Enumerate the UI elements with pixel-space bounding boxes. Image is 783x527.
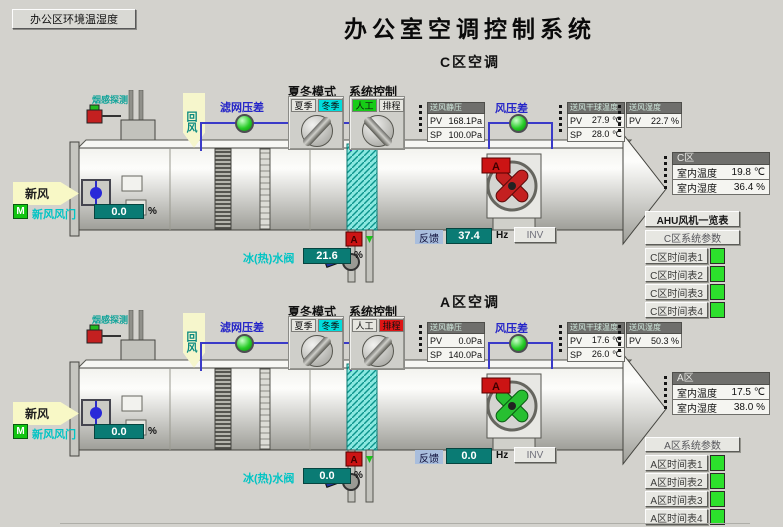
water-valve-value: 21.6 bbox=[303, 248, 351, 264]
supply-humidity-panel: 送风湿度 PV22.7 % bbox=[626, 102, 682, 128]
supply-pressure-pv: 168.1Pa bbox=[448, 116, 482, 126]
filter-section-icon bbox=[215, 149, 231, 229]
room-temp-value: 19.8 ℃ bbox=[732, 167, 765, 178]
inv-button[interactable]: INV bbox=[514, 227, 556, 243]
feedback-label: 反馈 bbox=[415, 230, 443, 244]
air-pressure-diff-label: 风压差 bbox=[495, 100, 528, 116]
fresh-damper-label: 新风风门 bbox=[32, 206, 76, 222]
access-door bbox=[122, 396, 142, 411]
sensor-probe-icon bbox=[664, 376, 667, 410]
filter-section-icon bbox=[215, 369, 231, 449]
a-schedule-2-button[interactable]: A区时间表2 bbox=[645, 473, 708, 489]
a-schedule-3-indicator bbox=[710, 491, 725, 507]
sensor-probe-icon bbox=[664, 156, 667, 190]
room-panel: A区 室内温度17.5 ℃ 室内湿度38.0 % bbox=[672, 372, 770, 415]
filter-pressure-indicator bbox=[235, 114, 254, 133]
c-schedule-4-button[interactable]: C区时间表4 bbox=[645, 302, 708, 318]
hz-unit: Hz bbox=[496, 230, 508, 241]
return-stack-pipe bbox=[129, 310, 133, 340]
filter-pressure-indicator bbox=[235, 334, 254, 353]
sensor-probe-icon bbox=[419, 105, 422, 133]
fresh-damper-label: 新风风门 bbox=[32, 426, 76, 442]
fresh-damper-value: 0.0 bbox=[94, 204, 144, 219]
svg-text:A: A bbox=[492, 161, 500, 173]
room-humidity-value: 38.0 % bbox=[734, 402, 765, 413]
mode-summer-chip[interactable]: 夏季 bbox=[291, 99, 316, 112]
room-name: A区 bbox=[672, 372, 770, 385]
mode-knob[interactable] bbox=[301, 335, 333, 367]
control-schedule-chip[interactable]: 排程 bbox=[379, 319, 404, 332]
sensor-probe-icon bbox=[559, 325, 562, 353]
cooling-coil-icon bbox=[347, 364, 377, 450]
feedback-value: 37.4 bbox=[446, 228, 492, 244]
zone-c-title: C区空调 bbox=[150, 52, 783, 72]
a-schedule-1-indicator bbox=[710, 455, 725, 471]
supply-temp-panel: 送风干球温度 PV27.9 ℃ SP28.0 ℃ bbox=[567, 102, 625, 142]
hvac-scada-screen: 办公区环境温湿度 办公室空调控制系统 C区空调 A区空调 bbox=[0, 0, 783, 527]
filter-section2-icon bbox=[260, 149, 270, 229]
svg-text:A: A bbox=[350, 235, 357, 246]
env-temp-humidity-button[interactable]: 办公区环境温湿度 bbox=[12, 9, 136, 29]
mode-switch-panel: 夏季 冬季 bbox=[288, 96, 344, 150]
sensor-probe-icon bbox=[559, 105, 562, 133]
supply-pressure-panel: 送风静压 PV0.0Pa SP140.0Pa bbox=[427, 322, 485, 362]
hz-unit: Hz bbox=[496, 450, 508, 461]
smoke-detector-label: 烟感探测 bbox=[92, 93, 128, 106]
a-params-button[interactable]: A区系统参数 bbox=[645, 437, 740, 452]
supply-pressure-sp: 100.0Pa bbox=[448, 130, 482, 140]
duct-outlet-arrow bbox=[623, 134, 666, 244]
supply-temp-panel: 送风干球温度 PV17.6 ℃ SP26.0 ℃ bbox=[567, 322, 625, 362]
manual-mode-badge: M bbox=[13, 204, 28, 219]
room-humidity-value: 36.4 % bbox=[734, 182, 765, 193]
divider bbox=[60, 523, 750, 524]
sensor-probe-icon bbox=[618, 325, 621, 353]
mode-winter-chip[interactable]: 冬季 bbox=[318, 99, 343, 112]
manual-mode-badge: M bbox=[13, 424, 28, 439]
c-schedule-1-button[interactable]: C区时间表1 bbox=[645, 248, 708, 264]
c-schedule-3-button[interactable]: C区时间表3 bbox=[645, 284, 708, 300]
smoke-detector-label: 烟感探测 bbox=[92, 313, 128, 326]
c-schedule-4-indicator bbox=[710, 302, 725, 318]
ahu-overview-button[interactable]: AHU风机一览表 bbox=[645, 211, 740, 227]
feedback-label: 反馈 bbox=[415, 450, 443, 464]
c-params-button[interactable]: C区系统参数 bbox=[645, 230, 740, 245]
control-knob[interactable] bbox=[362, 115, 394, 147]
c-schedule-2-button[interactable]: C区时间表2 bbox=[645, 266, 708, 282]
fresh-damper-value: 0.0 bbox=[94, 424, 144, 439]
water-valve-label: 冰(热)水阀 bbox=[243, 250, 294, 266]
feedback-value: 0.0 bbox=[446, 448, 492, 464]
air-pressure-indicator bbox=[509, 334, 528, 353]
inv-button[interactable]: INV bbox=[514, 447, 556, 463]
room-temp-value: 17.5 ℃ bbox=[732, 387, 765, 398]
sensor-probe-icon bbox=[419, 325, 422, 353]
water-valve-label: 冰(热)水阀 bbox=[243, 470, 294, 486]
access-door bbox=[122, 176, 142, 191]
control-manual-chip[interactable]: 人工 bbox=[352, 99, 377, 112]
control-manual-chip[interactable]: 人工 bbox=[352, 319, 377, 332]
mode-winter-chip[interactable]: 冬季 bbox=[318, 319, 343, 332]
filter-section2-icon bbox=[260, 369, 270, 449]
mode-summer-chip[interactable]: 夏季 bbox=[291, 319, 316, 332]
supply-pressure-panel: 送风静压 PV168.1Pa SP100.0Pa bbox=[427, 102, 485, 142]
air-pressure-diff-label: 风压差 bbox=[495, 320, 528, 336]
supply-humidity-pv: 22.7 % bbox=[651, 116, 679, 126]
c-schedule-3-indicator bbox=[710, 284, 725, 300]
water-valve-value: 0.0 bbox=[303, 468, 351, 484]
a-schedule-2-indicator bbox=[710, 473, 725, 489]
a-schedule-3-button[interactable]: A区时间表3 bbox=[645, 491, 708, 507]
supply-humidity-pv: 50.3 % bbox=[651, 336, 679, 346]
a-schedule-1-button[interactable]: A区时间表1 bbox=[645, 455, 708, 471]
room-panel: C区 室内温度19.8 ℃ 室内湿度36.4 % bbox=[672, 152, 770, 195]
sensor-probe-icon bbox=[618, 105, 621, 133]
c-schedule-1-indicator bbox=[710, 248, 725, 264]
fresh-air-damper-actuator bbox=[81, 399, 111, 426]
return-stack-pipe bbox=[129, 90, 133, 120]
control-switch-panel: 人工 排程 bbox=[349, 316, 405, 370]
control-switch-panel: 人工 排程 bbox=[349, 96, 405, 150]
supply-pressure-sp: 140.0Pa bbox=[448, 350, 482, 360]
mode-switch-panel: 夏季 冬季 bbox=[288, 316, 344, 370]
control-knob[interactable] bbox=[362, 335, 394, 367]
supply-pressure-pv: 0.0Pa bbox=[458, 336, 482, 346]
page-title: 办公室空调控制系统 bbox=[150, 10, 783, 44]
c-schedule-2-indicator bbox=[710, 266, 725, 282]
fresh-air-damper-actuator bbox=[81, 179, 111, 206]
filter-pressure-diff-label: 滤网压差 bbox=[220, 99, 264, 115]
filter-pressure-diff-label: 滤网压差 bbox=[220, 319, 264, 335]
mode-knob[interactable] bbox=[301, 115, 333, 147]
cooling-coil-icon bbox=[347, 144, 377, 230]
svg-text:A: A bbox=[350, 455, 357, 466]
room-name: C区 bbox=[672, 152, 770, 165]
svg-text:A: A bbox=[492, 381, 500, 393]
air-pressure-indicator bbox=[509, 114, 528, 133]
control-schedule-chip[interactable]: 排程 bbox=[379, 99, 404, 112]
supply-humidity-panel: 送风湿度 PV50.3 % bbox=[626, 322, 682, 348]
